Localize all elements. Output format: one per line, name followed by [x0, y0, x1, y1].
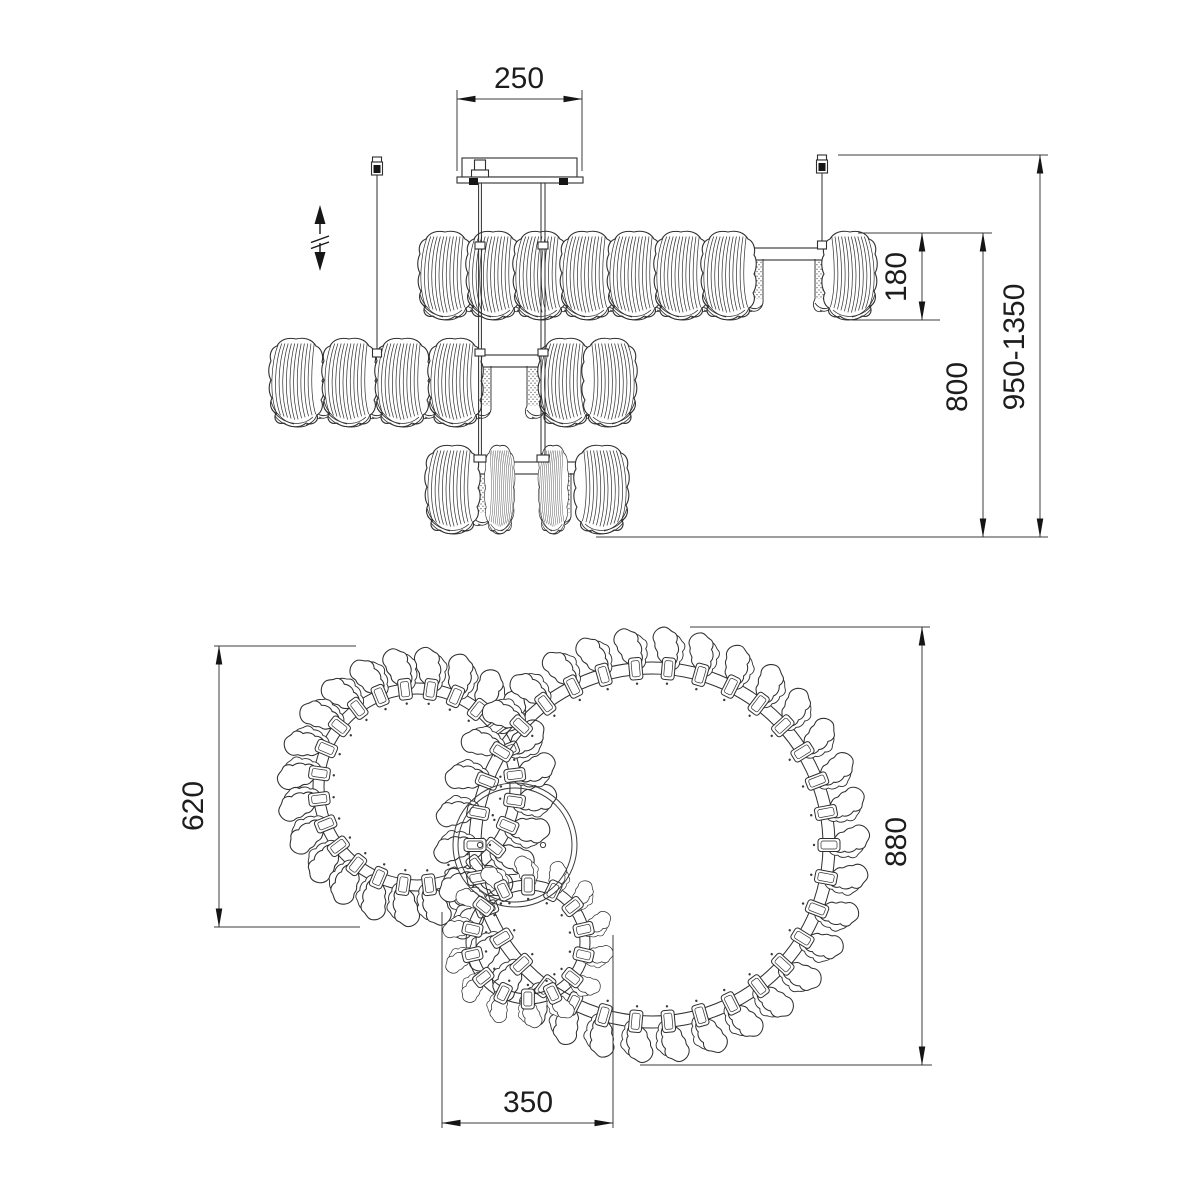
- glass-shade-shell: [654, 231, 710, 320]
- glass-shade-shell: [822, 231, 878, 320]
- ring-band-inner: [324, 694, 510, 880]
- dimension-canopy-width: 250: [457, 62, 582, 171]
- glass-shade-shell: [574, 445, 630, 534]
- suspension-cable-right: [817, 155, 828, 249]
- glass-shade-shell: [582, 338, 638, 427]
- ring-shade-unit: [439, 751, 507, 806]
- tier-3: [425, 445, 630, 534]
- tier-2: [269, 338, 638, 427]
- shade-rings: [273, 624, 872, 1066]
- glass-shade-shell: [701, 231, 757, 320]
- plan-view: 620 880 350: [177, 624, 932, 1128]
- glass-shade-shell: [466, 231, 522, 320]
- glass-shade-shell: [560, 231, 616, 320]
- glass-shade-shell: [607, 231, 663, 320]
- glass-shade-shell: [375, 338, 431, 427]
- glass-shade-shell: [425, 445, 481, 534]
- ring-shade-unit: [806, 783, 871, 830]
- glass-shade-shell: [484, 445, 515, 534]
- ceiling-canopy: [457, 158, 583, 185]
- height-adjustable-icon: [311, 205, 329, 271]
- ring-shade-unit: [796, 885, 864, 940]
- dimension-label-180: 180: [880, 252, 913, 302]
- dimension-label-250: 250: [494, 62, 544, 95]
- chandelier-technical-drawing: 250: [0, 0, 1200, 1200]
- glass-shade-shell: [322, 338, 378, 427]
- dimension-label-350: 350: [503, 1086, 553, 1119]
- glass-shade-shell: [418, 231, 474, 320]
- tier-1: [418, 231, 878, 320]
- side-elevation-view: 250: [269, 62, 1048, 537]
- dimension-label-950-1350: 950-1350: [998, 284, 1031, 411]
- ring-shade-unit: [675, 627, 726, 694]
- suspension-cable-left: [372, 157, 383, 357]
- dimension-label-800: 800: [941, 362, 974, 412]
- ring-shade-unit: [807, 854, 872, 901]
- shade-tiers: [269, 231, 878, 534]
- ring-shade-unit: [431, 790, 496, 837]
- ring-shade-unit: [513, 854, 539, 900]
- dimension-label-620: 620: [177, 781, 210, 831]
- dimension-label-880: 880: [880, 817, 913, 867]
- glass-shade-shell: [269, 338, 325, 427]
- dimension-overall-height: 950-1350: [838, 155, 1048, 537]
- drawing-page: 250: [0, 0, 1200, 1200]
- ring-shade-unit: [577, 995, 628, 1062]
